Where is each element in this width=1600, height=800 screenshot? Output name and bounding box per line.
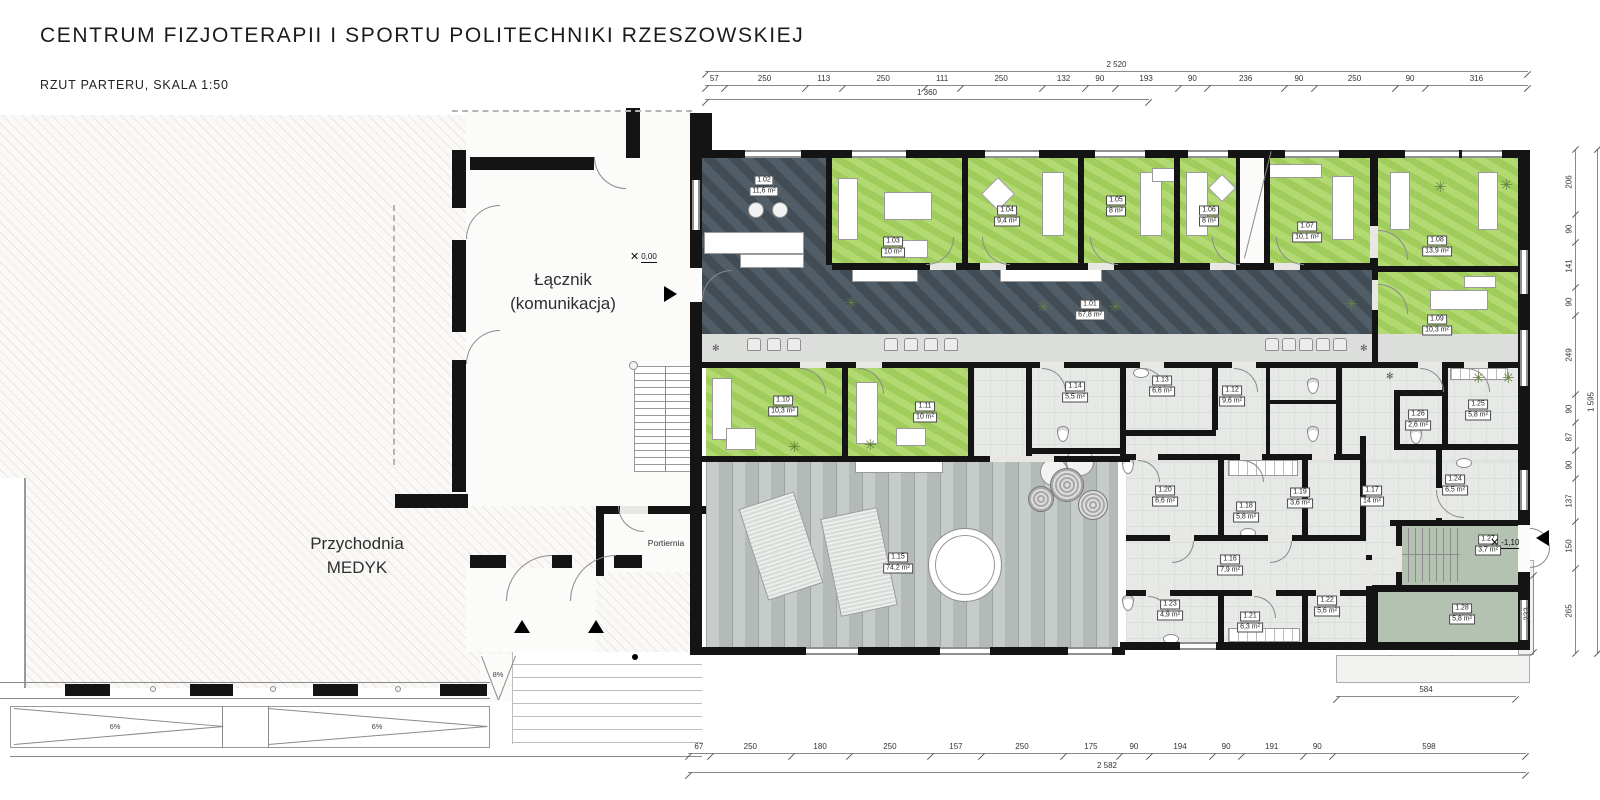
window xyxy=(745,150,801,158)
dim-segment: 157 xyxy=(930,743,981,753)
level-zero-value: 0,00 xyxy=(641,252,657,263)
room-number: 1.28 xyxy=(1452,604,1472,614)
dim-value: 132 xyxy=(1057,75,1070,83)
waiting-chair xyxy=(747,338,761,351)
dim-segment: 2 582 xyxy=(688,762,1526,772)
furniture xyxy=(270,686,276,692)
door-opening xyxy=(1396,546,1402,572)
window xyxy=(692,180,700,230)
wall xyxy=(614,555,642,568)
window xyxy=(1405,150,1459,158)
room-area: 6,3 m² xyxy=(1237,623,1263,633)
room-area: 3,6 m² xyxy=(1287,499,1313,509)
dim-segment: 90 xyxy=(1303,743,1332,753)
dim-value: 67 xyxy=(694,743,703,751)
furniture xyxy=(1268,164,1322,178)
waiting-chair xyxy=(787,338,801,351)
room-label-1-16: 1.167,9 m² xyxy=(1217,555,1243,576)
waiting-chair xyxy=(767,338,781,351)
dim-value: 2 582 xyxy=(1097,762,1117,770)
room-area: 10,1 m² xyxy=(1292,233,1322,243)
drawing-line xyxy=(1402,554,1460,555)
room-label-1-05: 1.058 m² xyxy=(1106,196,1126,217)
dim-value: 90 xyxy=(1222,743,1231,751)
furniture xyxy=(704,232,804,254)
furniture xyxy=(896,428,926,446)
dim-segment: 194 xyxy=(1149,743,1212,753)
room-number: 1.13 xyxy=(1152,376,1172,386)
furniture xyxy=(395,686,401,692)
window xyxy=(1462,150,1502,158)
waiting-corridor-fill xyxy=(700,334,1518,364)
dim-value: 265 xyxy=(1564,605,1573,618)
room-number: 1.07 xyxy=(1297,222,1317,232)
room-area: 11,6 m² xyxy=(749,187,778,197)
dim-value: 90 xyxy=(1564,460,1573,469)
room-label-1-23: 1.234,9 m² xyxy=(1157,600,1183,621)
room-number: 1.25 xyxy=(1468,400,1488,410)
dim-value: 1 595 xyxy=(1586,391,1595,411)
dim-segment: 90 xyxy=(1178,75,1207,85)
dim-value: 180 xyxy=(813,743,826,751)
dashed-line xyxy=(393,205,395,465)
waiting-chair xyxy=(1299,338,1313,351)
dim-segment: 132 xyxy=(1042,75,1085,85)
door-opening xyxy=(1370,226,1378,258)
dim-bottom-total: 2 582 xyxy=(688,759,1526,773)
dim-value: 111 xyxy=(936,75,948,83)
furniture xyxy=(1390,172,1410,230)
plant-icon: ✳ xyxy=(1109,300,1125,316)
plant-icon: ✳ xyxy=(788,440,804,456)
room-number: 1.17 xyxy=(1362,486,1382,496)
dim-value: 175 xyxy=(1084,743,1097,751)
wall xyxy=(1336,368,1342,456)
dim-value: 206 xyxy=(1564,176,1573,189)
room-number: 1.24 xyxy=(1445,475,1465,485)
dim-value: 150 xyxy=(1564,539,1573,552)
drawing-line xyxy=(10,756,702,757)
radiator-icon: ✻ xyxy=(1386,372,1396,382)
dim-segment: 250 xyxy=(724,75,806,85)
waiting-chair xyxy=(1265,338,1279,351)
wall xyxy=(962,158,968,265)
room-area: 5,8 m² xyxy=(1449,615,1475,625)
dim-value: 90 xyxy=(1095,75,1104,83)
drawing-line xyxy=(222,706,223,748)
dim-segment: 1 595 xyxy=(1584,150,1597,653)
closet-fill xyxy=(1240,158,1264,265)
dim-value: 250 xyxy=(883,743,896,751)
window xyxy=(1520,470,1528,510)
door-opening xyxy=(930,263,956,270)
room-area: 10 m² xyxy=(881,248,905,258)
room-number: 1.23 xyxy=(1160,600,1180,610)
furniture xyxy=(150,686,156,692)
ramp-right-label: 6% xyxy=(372,722,383,731)
furniture xyxy=(632,654,638,660)
wall xyxy=(440,684,487,696)
waiting-chair xyxy=(904,338,918,351)
dim-segment: 249 xyxy=(1562,316,1575,395)
portiernia-label: Portiernia xyxy=(648,538,684,548)
dim-right-extra: 233 xyxy=(1520,576,1534,652)
dim-value: 250 xyxy=(744,743,757,751)
terrace-fill xyxy=(1336,655,1530,683)
room-number: 1.14 xyxy=(1065,382,1085,392)
floor-plan-drawing: Łącznik (komunikacja) Przychodnia MEDYK … xyxy=(0,0,1600,800)
wall xyxy=(1372,592,1378,642)
room-number: 1.21 xyxy=(1240,612,1260,622)
wall xyxy=(1126,535,1366,541)
room-label-1-18: 1.185,8 m² xyxy=(1233,502,1259,523)
room-label-1-14: 1.145,5 m² xyxy=(1062,382,1088,403)
furniture xyxy=(772,202,788,218)
dim-value: 87 xyxy=(1564,432,1573,441)
drawing-line xyxy=(1390,655,1391,656)
dim-segment: 250 xyxy=(710,743,791,753)
window xyxy=(852,150,906,158)
room-number: 1.26 xyxy=(1408,410,1428,420)
dim-segment: 316 xyxy=(1425,75,1528,85)
room-area: 14 m² xyxy=(1360,497,1384,507)
furniture xyxy=(629,361,638,370)
medyk-line2: MEDYK xyxy=(310,556,404,580)
wall xyxy=(1266,368,1270,456)
room-area: 7,9 m² xyxy=(1217,566,1243,576)
room-area: 9,6 m² xyxy=(1219,397,1245,407)
wall xyxy=(1120,368,1126,458)
furniture xyxy=(1000,268,1102,282)
wall xyxy=(313,684,358,696)
dim-value: 191 xyxy=(1265,743,1278,751)
radiator-icon: ✻ xyxy=(712,344,722,354)
dim-value: 233 xyxy=(1522,607,1531,620)
dim-value: 90 xyxy=(1313,743,1322,751)
room-number: 1.02 xyxy=(754,176,774,186)
room-label-1-02: 1.0211,6 m² xyxy=(749,176,778,197)
door-swing-arc xyxy=(1530,548,1550,568)
wall xyxy=(690,647,1125,655)
plant-icon: ✳ xyxy=(864,438,880,454)
wall xyxy=(452,240,466,332)
window xyxy=(940,647,990,655)
dim-value: 157 xyxy=(949,743,962,751)
dim-segment: 87 xyxy=(1562,423,1575,450)
room-label-1-06: 1.068 m² xyxy=(1199,206,1219,227)
room-area: 13,9 m² xyxy=(1422,247,1452,257)
dashed-line xyxy=(452,110,692,112)
furniture xyxy=(748,202,764,218)
dim-top-segments: 5725011325011125013290193902369025090316 xyxy=(705,72,1528,86)
wall xyxy=(1390,520,1518,526)
plant-icon: ✳ xyxy=(845,296,861,312)
side-entrance-opening xyxy=(1518,525,1530,572)
window xyxy=(1095,150,1145,158)
room-area: 6,5 m² xyxy=(1442,486,1468,496)
furniture xyxy=(1456,458,1472,468)
room-area: 6,6 m² xyxy=(1149,387,1175,397)
dim-value: 90 xyxy=(1406,75,1415,83)
wall xyxy=(1394,444,1518,450)
furniture xyxy=(740,254,804,268)
wall xyxy=(1442,368,1448,450)
dim-value: 598 xyxy=(1422,743,1435,751)
plant-icon: ✳ xyxy=(1434,180,1450,196)
drawing-line xyxy=(0,698,490,699)
waiting-chair xyxy=(1316,338,1330,351)
room-area: 10 m² xyxy=(913,413,937,423)
medyk-label: Przychodnia MEDYK xyxy=(310,532,404,580)
dim-value: 250 xyxy=(1348,75,1361,83)
waiting-chair xyxy=(884,338,898,351)
window xyxy=(806,647,858,655)
wall xyxy=(452,150,466,208)
wall xyxy=(552,555,572,568)
hall-entrance-opening xyxy=(690,268,702,302)
room-area: 8 m² xyxy=(1106,207,1126,217)
room-label-1-04: 1.049,4 m² xyxy=(994,206,1020,227)
wall xyxy=(395,494,468,508)
dim-value: 90 xyxy=(1294,75,1303,83)
room-number: 1.01 xyxy=(1080,300,1100,310)
dim-segment: 90 xyxy=(1085,75,1114,85)
wall xyxy=(470,555,506,568)
room-area: 5,6 m² xyxy=(1314,607,1340,617)
window xyxy=(1520,250,1528,294)
waiting-chair xyxy=(1282,338,1296,351)
furniture xyxy=(928,528,1002,602)
drawing-line xyxy=(0,682,490,683)
wall xyxy=(190,684,233,696)
furniture xyxy=(1042,172,1064,236)
furniture xyxy=(1464,276,1496,288)
room-number: 1.05 xyxy=(1106,196,1126,206)
furniture xyxy=(1028,486,1054,512)
door-opening xyxy=(1366,560,1372,586)
medyk-line1: Przychodnia xyxy=(310,532,404,556)
wall xyxy=(1270,400,1336,404)
room-number: 1.16 xyxy=(1220,555,1240,565)
dim-segment: 90 xyxy=(1562,451,1575,479)
dim-value: 141 xyxy=(1564,259,1573,272)
dim-value: 584 xyxy=(1419,686,1432,694)
room-area: 5,8 m² xyxy=(1233,513,1259,523)
room-number: 1.12 xyxy=(1222,386,1242,396)
dim-segment: 137 xyxy=(1562,479,1575,522)
room-number: 1.09 xyxy=(1427,315,1447,325)
level-marker-zero: ✕0,00 xyxy=(630,250,657,263)
dim-segment: 90 xyxy=(1284,75,1313,85)
room-label-1-07: 1.0710,1 m² xyxy=(1292,222,1322,243)
entrance-steps xyxy=(512,652,702,744)
dim-value: 316 xyxy=(1470,75,1483,83)
room-label-1-17: 1.1714 m² xyxy=(1360,486,1384,507)
entrance-arrow-icon xyxy=(514,620,530,633)
dim-segment: 90 xyxy=(1212,743,1241,753)
dim-segment: 141 xyxy=(1562,243,1575,287)
room-label-1-26: 1.262,6 m² xyxy=(1405,410,1431,431)
window xyxy=(1068,647,1112,655)
lacznik-label: Łącznik (komunikacja) xyxy=(510,268,616,316)
dim-value: 193 xyxy=(1139,75,1152,83)
furniture xyxy=(1228,460,1298,476)
stairwell-stairs xyxy=(1402,528,1460,582)
room-number: 1.11 xyxy=(915,402,934,412)
dim-segment: 113 xyxy=(805,75,842,85)
room-label-1-25: 1.255,8 m² xyxy=(1465,400,1491,421)
door-opening xyxy=(800,362,826,368)
dim-bottom-segments: 67250180250157250175901949019190598 xyxy=(688,740,1526,754)
dim-value: 2 520 xyxy=(1106,61,1126,69)
dim-top-total: 2 520 xyxy=(705,58,1528,72)
colonnade xyxy=(0,478,26,688)
room-area: 10,3 m² xyxy=(1422,326,1452,336)
lacznik-stairs xyxy=(634,366,698,472)
room-label-1-12: 1.129,6 m² xyxy=(1219,386,1245,407)
dim-right-segments: 2069014190249908790137150265 xyxy=(1562,150,1576,653)
entrance-arrow-icon xyxy=(664,286,677,302)
wall xyxy=(65,684,110,696)
wall xyxy=(1078,158,1084,265)
wall xyxy=(700,362,974,368)
dim-segment: 90 xyxy=(1395,75,1424,85)
room-number: 1.22 xyxy=(1317,596,1337,606)
dim-value: 90 xyxy=(1564,225,1573,234)
wall xyxy=(1174,158,1180,265)
room-label-1-11: 1.1110 m² xyxy=(913,402,937,423)
plant-icon: ✳ xyxy=(1345,297,1361,313)
wall xyxy=(700,456,1130,462)
room-number: 1.19 xyxy=(1290,488,1310,498)
waiting-chair xyxy=(944,338,958,351)
dim-segment: 191 xyxy=(1241,743,1303,753)
dim-segment: 90 xyxy=(1562,215,1575,243)
dim-segment: 250 xyxy=(981,743,1062,753)
room-label-1-08: 1.0813,9 m² xyxy=(1422,236,1452,257)
wall xyxy=(1372,585,1518,592)
room-area: 2,6 m² xyxy=(1405,421,1431,431)
dim-value: 236 xyxy=(1239,75,1252,83)
dim-segment: 584 xyxy=(1336,686,1516,696)
room-label-1-13: 1.136,6 m² xyxy=(1149,376,1175,397)
radiator-icon: ✻ xyxy=(1360,344,1370,354)
dim-segment: 180 xyxy=(791,743,849,753)
dim-value: 90 xyxy=(1564,404,1573,413)
furniture xyxy=(838,178,858,240)
room-number: 1.20 xyxy=(1155,486,1175,496)
dim-segment: 598 xyxy=(1332,743,1526,753)
drawing-line xyxy=(665,366,666,472)
dim-value: 57 xyxy=(710,75,719,83)
dim-segment: 2 520 xyxy=(705,61,1528,71)
door-opening xyxy=(990,456,1054,462)
room-label-1-09: 1.0910,3 m² xyxy=(1422,315,1452,336)
room-label-1-24: 1.246,5 m² xyxy=(1442,475,1468,496)
room-label-1-21: 1.216,3 m² xyxy=(1237,612,1263,633)
dim-segment: 233 xyxy=(1520,576,1533,652)
dim-value: 194 xyxy=(1173,743,1186,751)
dim-value: 250 xyxy=(1015,743,1028,751)
level-x-icon: ✕ xyxy=(1490,537,1499,549)
furniture xyxy=(726,428,756,450)
level-marker-minus: ✕-1,10 xyxy=(1490,536,1519,549)
dim-segment: 250 xyxy=(849,743,930,753)
dim-value: 137 xyxy=(1564,494,1573,507)
dim-segment: 250 xyxy=(842,75,924,85)
dim-segment: 175 xyxy=(1063,743,1120,753)
room-area: 74,2 m² xyxy=(883,564,913,574)
dim-value: 250 xyxy=(876,75,889,83)
room-fill-1-28 xyxy=(1378,592,1518,642)
wall xyxy=(452,360,466,492)
window xyxy=(1180,642,1216,650)
furniture xyxy=(1478,172,1498,230)
wall xyxy=(1026,368,1032,458)
room-number: 1.03 xyxy=(883,237,903,247)
lacznik-line2: (komunikacja) xyxy=(510,292,616,316)
dim-value: 113 xyxy=(817,75,830,83)
plant-icon: ✳ xyxy=(1037,300,1053,316)
wall xyxy=(1212,368,1218,430)
dim-segment: 250 xyxy=(960,75,1042,85)
dim-segment: 250 xyxy=(1314,75,1396,85)
dim-segment: 265 xyxy=(1562,569,1575,653)
ramp-small-label: 8% xyxy=(493,670,504,679)
room-area: 9,4 m² xyxy=(994,217,1020,227)
wall xyxy=(1378,266,1518,272)
dim-top-partial: 1 360 xyxy=(705,86,1149,100)
furniture xyxy=(884,192,932,220)
room-number: 1.04 xyxy=(997,206,1017,216)
window xyxy=(985,150,1039,158)
room-area: 6,6 m² xyxy=(1152,497,1178,507)
dim-segment: 236 xyxy=(1207,75,1284,85)
level-x-icon: ✕ xyxy=(630,251,639,263)
furniture xyxy=(902,240,928,258)
dim-segment: 67 xyxy=(688,743,710,753)
wall xyxy=(1026,448,1126,454)
dim-value: 250 xyxy=(758,75,771,83)
dim-value: 1 360 xyxy=(917,89,937,97)
room-area: 10,3 m² xyxy=(768,407,798,417)
room-label-1-19: 1.193,6 m² xyxy=(1287,488,1313,509)
room-area: 5,5 m² xyxy=(1062,393,1088,403)
wall xyxy=(626,108,640,158)
dim-segment: 206 xyxy=(1562,150,1575,215)
dim-value: 90 xyxy=(1129,743,1138,751)
room-number: 1.08 xyxy=(1427,236,1447,246)
door-opening xyxy=(1312,454,1334,460)
room-label-1-20: 1.206,6 m² xyxy=(1152,486,1178,507)
room-label-1-22: 1.225,6 m² xyxy=(1314,596,1340,617)
waiting-chair xyxy=(924,338,938,351)
window xyxy=(1520,330,1528,386)
wall xyxy=(1126,430,1216,436)
dim-segment: 1 360 xyxy=(705,89,1149,99)
wall xyxy=(826,158,832,265)
entrance-arrow-icon xyxy=(588,620,604,633)
ramp-band xyxy=(10,706,490,748)
wall xyxy=(470,157,594,170)
dim-segment: 57 xyxy=(705,75,724,85)
wall xyxy=(968,362,974,462)
room-label-1-01: 1.0167,8 m² xyxy=(1075,300,1105,321)
drawing-line xyxy=(1452,655,1453,656)
room-number: 1.06 xyxy=(1199,206,1219,216)
room-number: 1.15 xyxy=(888,553,908,563)
wall xyxy=(1218,460,1224,540)
